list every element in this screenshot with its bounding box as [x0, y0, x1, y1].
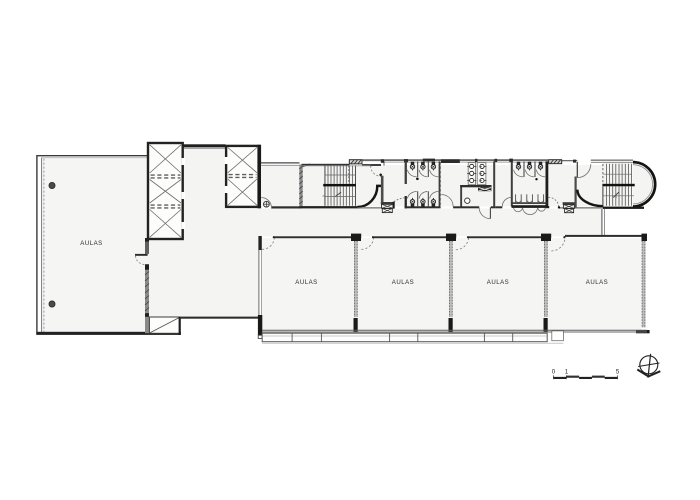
svg-text:AULAS: AULAS [80, 240, 102, 247]
svg-text:1: 1 [565, 369, 569, 376]
svg-text:0: 0 [552, 369, 556, 376]
svg-text:AULAS: AULAS [586, 279, 608, 286]
svg-text:5: 5 [616, 369, 620, 376]
svg-text:AULAS: AULAS [487, 279, 509, 286]
svg-text:AULAS: AULAS [392, 279, 414, 286]
svg-text:AULAS: AULAS [295, 279, 317, 286]
